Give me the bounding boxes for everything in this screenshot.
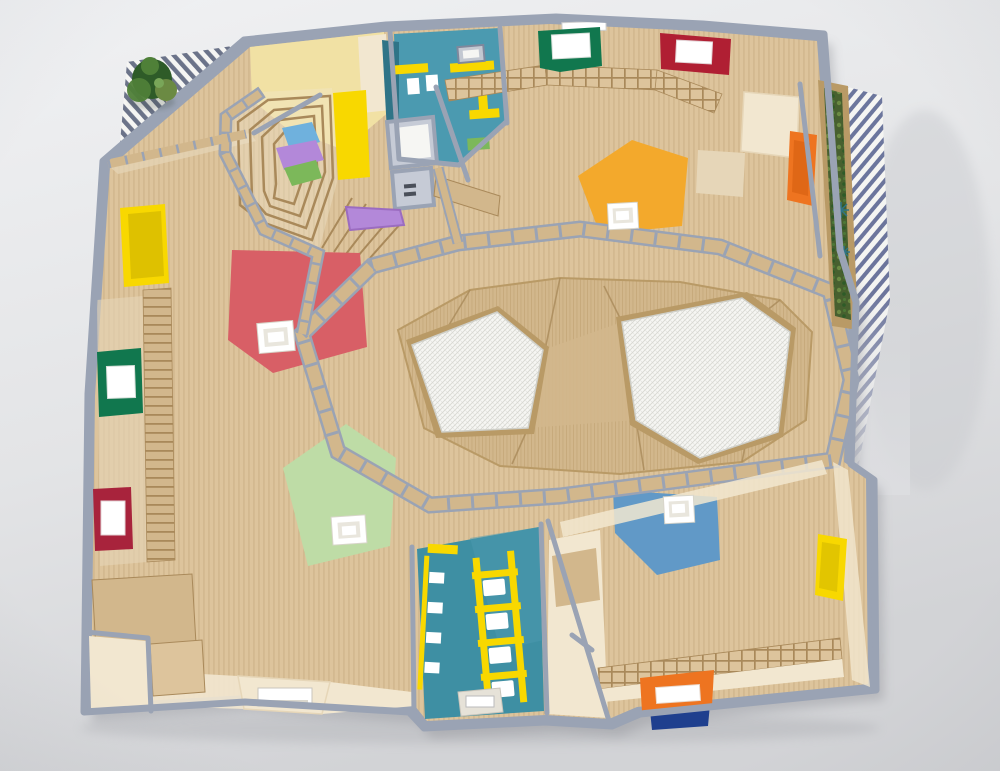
photo-of-architectural-model: [0, 0, 1000, 771]
model-photo-canvas: [0, 0, 1000, 771]
photo-vignette: [0, 0, 1000, 771]
